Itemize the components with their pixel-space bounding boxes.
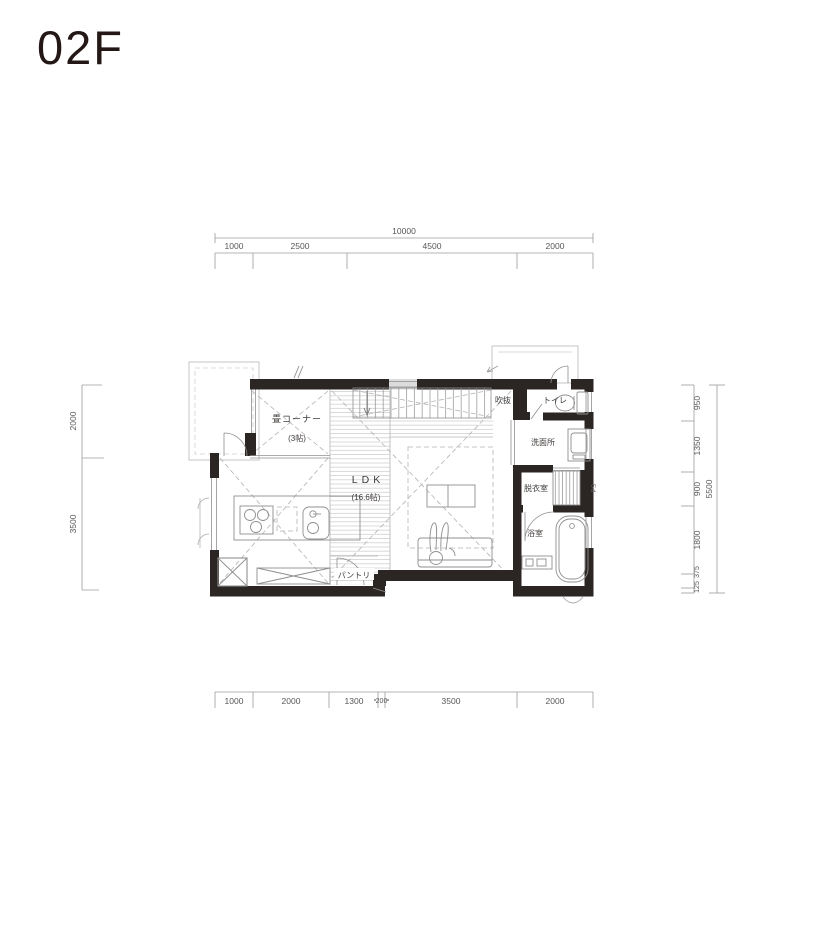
dim-right-seg: 950	[692, 396, 702, 410]
dimension-bottom: 1000 2000 1300 200 3500 2000	[215, 692, 593, 708]
room-size-ldk: (16.6帖)	[352, 492, 381, 502]
room-label-toilet: トイレ	[543, 396, 567, 405]
washer-pan	[553, 471, 580, 505]
dim-bottom-seg: 3500	[442, 696, 461, 706]
dim-top-seg: 4500	[423, 241, 442, 251]
dim-top-seg: 2000	[546, 241, 565, 251]
dim-bottom-seg: 1000	[225, 696, 244, 706]
dim-bottom-seg: 2000	[546, 696, 565, 706]
dim-right-seg: 125	[694, 581, 701, 593]
dim-top-total: 10000	[392, 226, 416, 236]
dim-bottom-seg: 1300	[345, 696, 364, 706]
dimension-top: 10000 1000 2500 4500 2000	[215, 226, 593, 269]
bathtub	[522, 516, 588, 582]
floor-hatch	[330, 390, 493, 586]
floor-plan-drawing: 10000 1000 2500 4500 2000 1000 2000 1300…	[0, 0, 840, 929]
room-label-bath: 浴室	[527, 528, 543, 538]
dim-right-seg: 1350	[692, 436, 702, 455]
vanity	[568, 429, 590, 461]
dimension-left: 2000 3500	[68, 385, 104, 590]
dim-bottom-seg: 2000	[282, 696, 301, 706]
room-label-washroom: 洗面所	[531, 437, 555, 447]
stairs	[353, 388, 491, 418]
dim-right-seg: 1800	[692, 530, 702, 549]
dim-right-seg: 900	[692, 482, 702, 496]
room-label-ldk: LDK	[352, 474, 384, 486]
room-size-tatami: (3帖)	[288, 433, 306, 443]
dim-top-seg: 1000	[225, 241, 244, 251]
room-label-pantry: パントリ	[338, 571, 370, 580]
dim-left-seg: 2000	[68, 411, 78, 430]
dim-bottom-seg: 200	[376, 698, 388, 705]
room-label-ps: PS	[592, 483, 598, 492]
dimension-right: 950 1350 900 1800 375 125 5500	[681, 385, 725, 593]
dining-table	[427, 485, 475, 507]
floor-plan-page: 02F 10000 1000 2500 4500	[0, 0, 840, 929]
room-label-dressing: 脱衣室	[524, 483, 548, 493]
dim-left-seg: 3500	[68, 514, 78, 533]
dim-right-total: 5500	[704, 479, 714, 498]
dim-top-seg: 2500	[291, 241, 310, 251]
dim-right-seg: 375	[694, 566, 701, 578]
sofa	[418, 523, 492, 567]
room-label-tatami: 畳コーナー	[272, 414, 322, 424]
storage-boxes	[218, 558, 330, 586]
room-label-void: 吹抜	[495, 395, 511, 405]
